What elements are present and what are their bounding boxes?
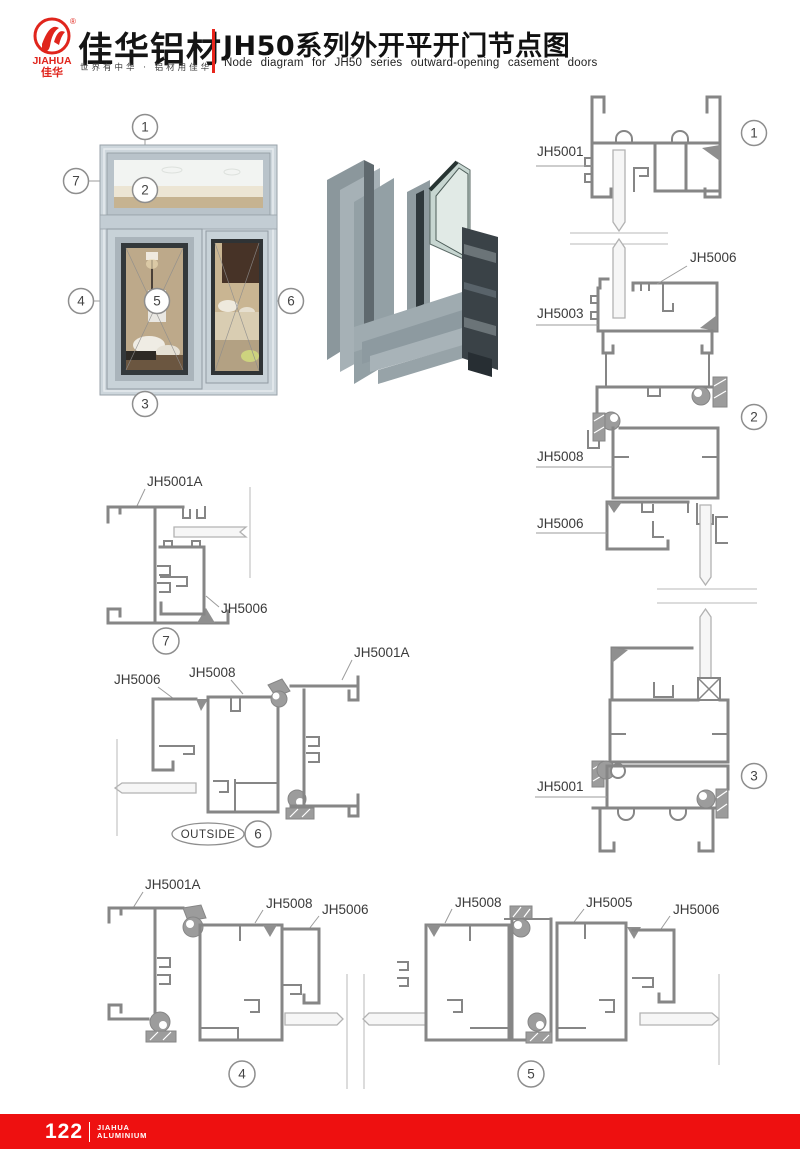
label-jh5006-s6: JH5006 [114, 672, 161, 687]
vertical-section-drawings: JH5001 JH5006 JH5003 1 [530, 85, 792, 877]
page-number: 122 [45, 1120, 83, 1144]
label-jh5001-s3: JH5001 [537, 779, 584, 794]
window-overview-illustration: 1 7 2 4 5 6 3 [55, 108, 307, 420]
label-jh5003-s1: JH5003 [537, 306, 584, 321]
window-photo [100, 145, 277, 395]
header-divider [212, 29, 215, 73]
horizontal-section-drawings: JH5001A JH5008 JH5006 [80, 868, 792, 1095]
footer-brand-line2: ALUMINIUM [97, 1132, 147, 1140]
label-jh5006-s1: JH5006 [690, 250, 737, 265]
callout-6: 6 [287, 294, 295, 309]
label-jh5001a-s6: JH5001A [354, 645, 410, 660]
section-2-number: 2 [750, 410, 758, 425]
label-jh5001-s1: JH5001 [537, 144, 584, 159]
section-2-drawing: JH5008 JH5006 2 [536, 353, 767, 603]
section-5-drawing: JH5008 JH5005 JH5006 [398, 895, 720, 1087]
callout-7: 7 [72, 174, 80, 189]
label-jh5006-s4: JH5006 [322, 902, 369, 917]
section-6-number: 6 [254, 827, 262, 842]
callout-2: 2 [141, 183, 149, 198]
callout-5: 5 [153, 294, 161, 309]
outside-label: OUTSIDE [181, 829, 236, 841]
label-jh5001a-s4: JH5001A [145, 877, 201, 892]
label-jh5008-s6: JH5008 [189, 665, 236, 680]
label-jh5005-s5: JH5005 [586, 895, 633, 910]
section-1-number: 1 [750, 126, 758, 141]
registered-mark: ® [70, 17, 76, 26]
label-jh5008-s4: JH5008 [266, 896, 313, 911]
label-jh5006-s7: JH5006 [221, 601, 268, 616]
brand-tagline: 世界有中华 · 铝材用佳华 [80, 61, 212, 73]
section-4-drawing: JH5001A JH5008 JH5006 [109, 877, 426, 1089]
section-6-drawing: JH5006 JH5008 JH5001A OUTSIDE 6 [95, 640, 435, 855]
page-subtitle: Node diagram for JH50 series outward-ope… [224, 57, 597, 69]
label-jh5001a-s7: JH5001A [147, 474, 203, 489]
section-3-drawing: JH5001 3 [535, 609, 767, 851]
catalog-page: ® JIAHUA 佳华 佳华铝材 世界有中华 · 铝材用佳华 JH50系列外开平… [0, 0, 800, 1167]
label-jh5006-s2: JH5006 [537, 516, 584, 531]
logo-brand-cn: 佳华 [41, 65, 63, 79]
page-header: ® JIAHUA 佳华 佳华铝材 世界有中华 · 铝材用佳华 JH50系列外开平… [0, 0, 800, 90]
label-jh5006-s5: JH5006 [673, 902, 720, 917]
aluminium-corner-sample [327, 160, 498, 384]
label-jh5008-s5: JH5008 [455, 895, 502, 910]
jiahua-logo-icon: ® JIAHUA 佳华 [28, 14, 80, 80]
section-7-drawing: JH5001A JH5006 7 [95, 455, 310, 660]
callout-1: 1 [141, 120, 149, 135]
section-5-number: 5 [527, 1067, 535, 1082]
callout-4: 4 [77, 294, 85, 309]
label-jh5008-s2: JH5008 [537, 449, 584, 464]
section-4-number: 4 [238, 1067, 246, 1082]
section-3-number: 3 [750, 769, 758, 784]
profile-3d-render [312, 132, 517, 397]
page-footer: 122 JIAHUA ALUMINIUM [0, 1114, 800, 1149]
footer-divider [89, 1122, 90, 1142]
callout-3: 3 [141, 397, 149, 412]
section-1-drawing: JH5001 JH5006 JH5003 1 [536, 97, 767, 353]
